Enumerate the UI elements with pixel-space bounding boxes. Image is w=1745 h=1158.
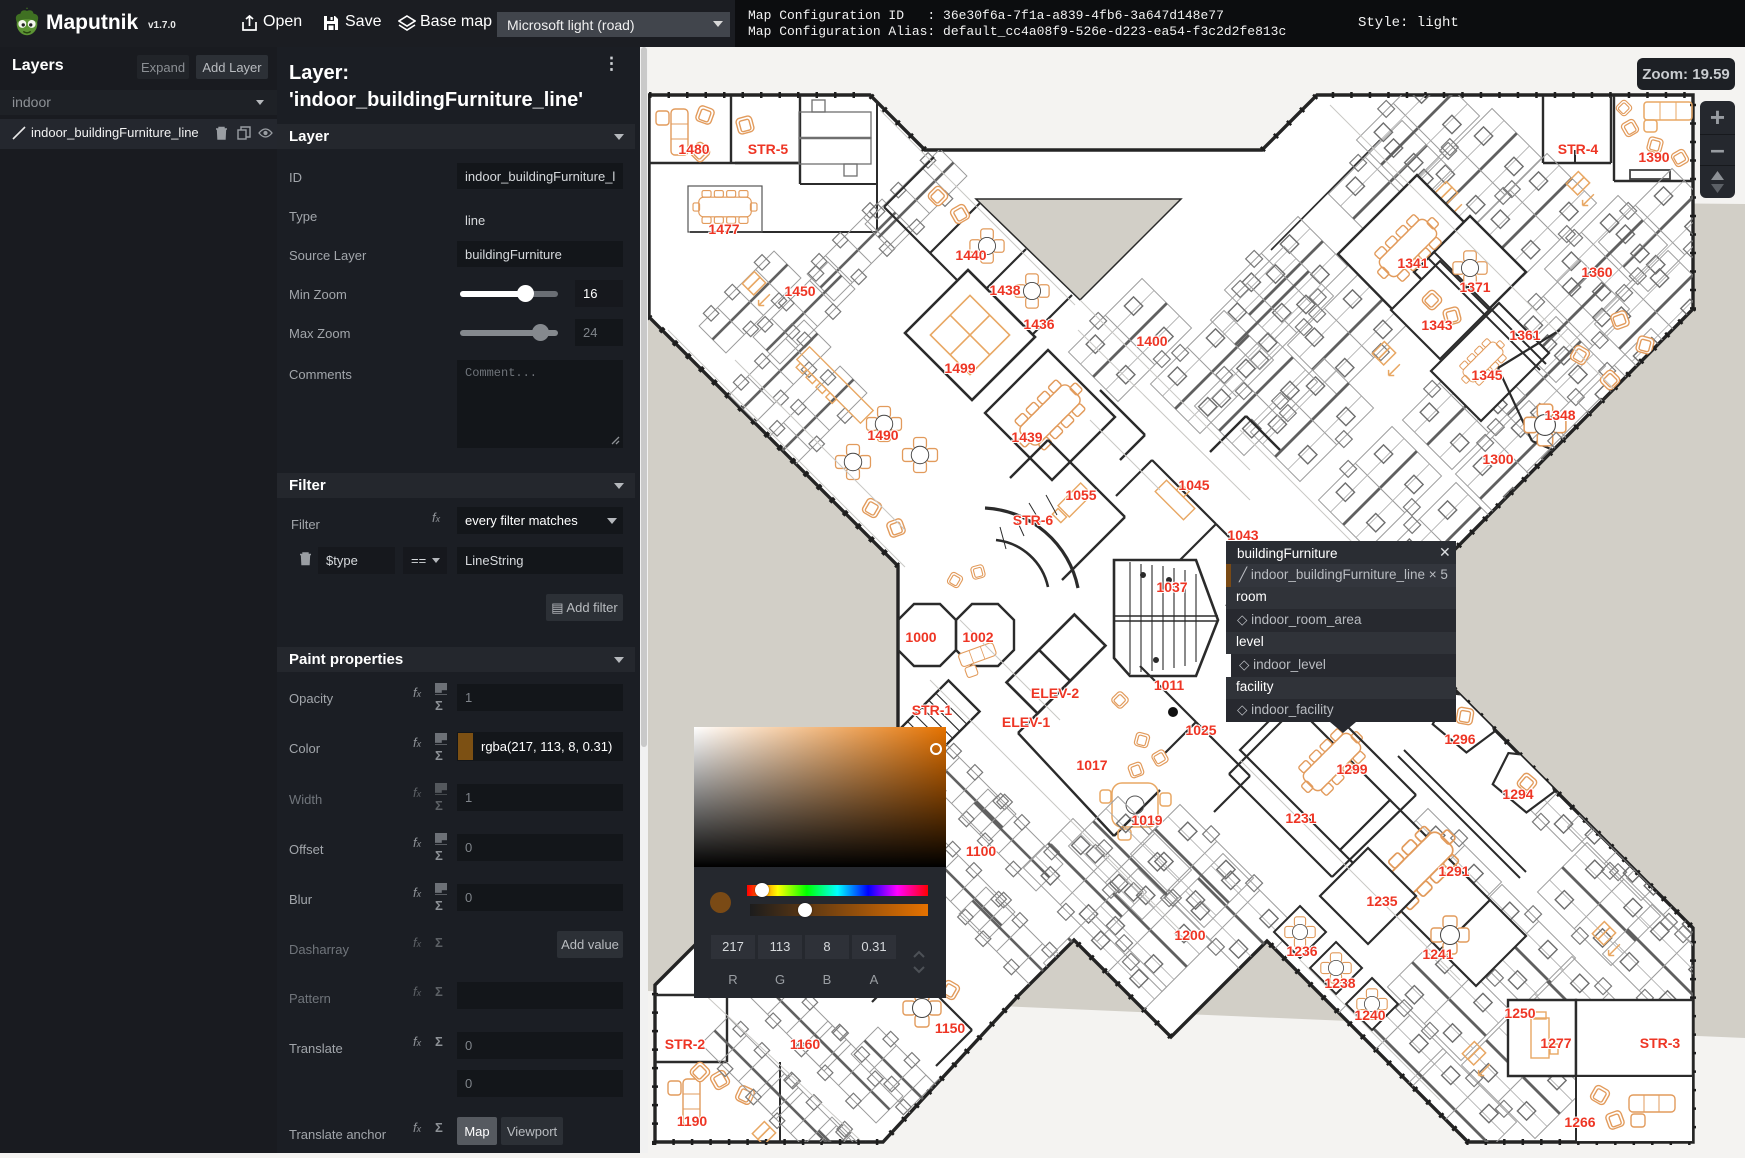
svg-text:1490: 1490	[867, 427, 898, 443]
svg-text:1436: 1436	[1023, 316, 1054, 332]
svg-text:1055: 1055	[1065, 487, 1096, 503]
svg-text:ELEV-1: ELEV-1	[1002, 714, 1050, 730]
svg-text:1241: 1241	[1422, 946, 1453, 962]
svg-text:1011: 1011	[1154, 677, 1185, 693]
svg-text:ELEV-2: ELEV-2	[1031, 685, 1079, 701]
svg-text:1250: 1250	[1504, 1005, 1535, 1021]
svg-text:1037: 1037	[1156, 579, 1187, 595]
svg-text:1240: 1240	[1354, 1007, 1385, 1023]
svg-text:STR-6: STR-6	[1013, 512, 1054, 528]
svg-text:1200: 1200	[1174, 927, 1205, 943]
svg-text:1390: 1390	[1638, 149, 1669, 165]
svg-text:1477: 1477	[708, 221, 739, 237]
svg-text:1371: 1371	[1459, 279, 1490, 295]
svg-text:1160: 1160	[790, 1036, 821, 1052]
svg-text:1002: 1002	[962, 629, 993, 645]
svg-text:1100: 1100	[966, 843, 997, 859]
svg-text:1025: 1025	[1185, 722, 1216, 738]
svg-text:1300: 1300	[1482, 451, 1513, 467]
svg-text:1266: 1266	[1564, 1114, 1595, 1130]
svg-text:1348: 1348	[1544, 407, 1575, 423]
svg-text:1150: 1150	[935, 1020, 966, 1036]
svg-text:1438: 1438	[989, 282, 1020, 298]
svg-text:1499: 1499	[944, 360, 975, 376]
svg-text:1360: 1360	[1581, 264, 1612, 280]
svg-text:1299: 1299	[1336, 761, 1367, 777]
svg-text:1291: 1291	[1438, 863, 1469, 879]
svg-text:STR-4: STR-4	[1558, 141, 1599, 157]
svg-text:1345: 1345	[1471, 367, 1502, 383]
svg-text:1000: 1000	[905, 629, 936, 645]
svg-text:1440: 1440	[955, 247, 986, 263]
svg-text:1341: 1341	[1397, 255, 1428, 271]
svg-text:1480: 1480	[678, 141, 709, 157]
svg-text:1294: 1294	[1502, 786, 1533, 802]
svg-text:1019: 1019	[1131, 812, 1162, 828]
svg-text:1296: 1296	[1444, 731, 1475, 747]
svg-text:1277: 1277	[1540, 1035, 1571, 1051]
svg-text:STR-3: STR-3	[1640, 1035, 1681, 1051]
svg-text:1439: 1439	[1011, 429, 1042, 445]
svg-text:1235: 1235	[1366, 893, 1397, 909]
svg-text:1361: 1361	[1509, 327, 1540, 343]
svg-text:STR-2: STR-2	[665, 1036, 706, 1052]
svg-text:STR-1: STR-1	[912, 702, 953, 718]
svg-text:1400: 1400	[1136, 333, 1167, 349]
svg-text:1238: 1238	[1324, 975, 1355, 991]
svg-text:1236: 1236	[1286, 943, 1317, 959]
svg-text:1017: 1017	[1076, 757, 1107, 773]
svg-text:1231: 1231	[1285, 810, 1316, 826]
svg-text:STR-5: STR-5	[748, 141, 789, 157]
svg-text:1450: 1450	[784, 283, 815, 299]
svg-text:1343: 1343	[1421, 317, 1452, 333]
svg-text:1190: 1190	[677, 1113, 708, 1129]
svg-text:1045: 1045	[1178, 477, 1209, 493]
